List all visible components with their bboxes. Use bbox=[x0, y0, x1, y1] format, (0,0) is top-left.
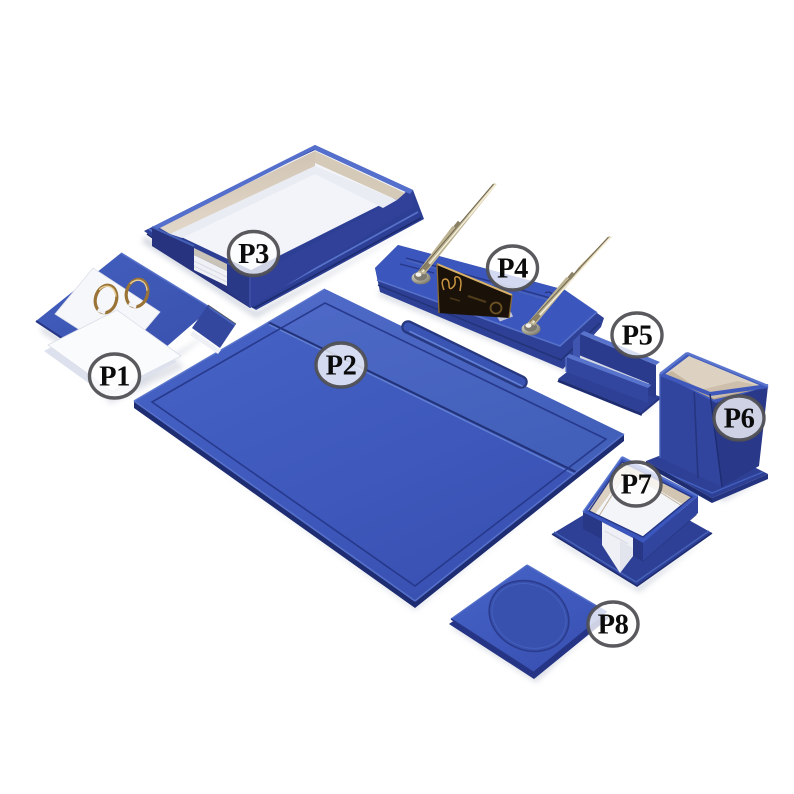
svg-text:P3: P3 bbox=[238, 239, 269, 270]
svg-text:P5: P5 bbox=[622, 321, 653, 352]
svg-text:P8: P8 bbox=[598, 610, 629, 641]
svg-text:P6: P6 bbox=[724, 404, 755, 435]
svg-text:P1: P1 bbox=[99, 362, 130, 393]
svg-text:P7: P7 bbox=[621, 470, 652, 501]
svg-text:P2: P2 bbox=[326, 351, 357, 382]
svg-text:P4: P4 bbox=[497, 254, 528, 285]
